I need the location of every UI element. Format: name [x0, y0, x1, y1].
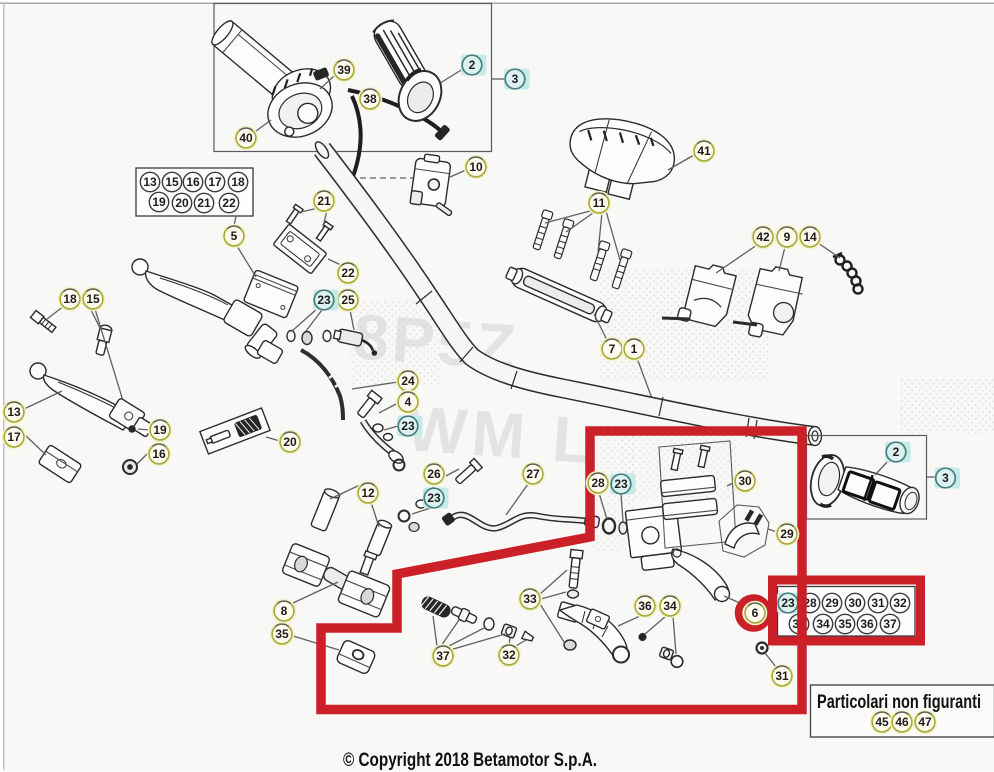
svg-text:17: 17	[7, 430, 21, 444]
svg-text:37: 37	[883, 617, 897, 631]
svg-text:2: 2	[469, 58, 476, 72]
svg-text:Particolari non figuranti: Particolari non figuranti	[817, 692, 981, 713]
svg-text:36: 36	[638, 599, 652, 613]
svg-text:42: 42	[756, 230, 770, 244]
svg-text:23: 23	[317, 293, 331, 307]
svg-text:© Copyright 2018 Betamotor S.p: © Copyright 2018 Betamotor S.p.A.	[343, 749, 597, 771]
svg-text:3: 3	[512, 72, 519, 86]
svg-text:24: 24	[401, 374, 415, 388]
svg-text:21: 21	[197, 196, 211, 210]
svg-text:12: 12	[361, 486, 375, 500]
svg-text:37: 37	[436, 649, 450, 663]
svg-text:31: 31	[775, 669, 789, 683]
svg-text:27: 27	[526, 467, 540, 481]
svg-text:10: 10	[469, 160, 483, 174]
svg-text:14: 14	[803, 230, 817, 244]
svg-text:23: 23	[781, 596, 795, 610]
svg-text:21: 21	[317, 194, 331, 208]
svg-text:41: 41	[697, 144, 711, 158]
svg-text:35: 35	[838, 617, 852, 631]
svg-text:20: 20	[175, 196, 189, 210]
svg-text:23: 23	[427, 491, 441, 505]
svg-text:30: 30	[738, 474, 752, 488]
svg-text:1: 1	[631, 342, 638, 356]
svg-text:16: 16	[186, 175, 200, 189]
svg-text:18: 18	[63, 292, 77, 306]
svg-text:17: 17	[208, 175, 222, 189]
svg-text:13: 13	[7, 405, 21, 419]
svg-text:16: 16	[152, 447, 166, 461]
svg-text:15: 15	[86, 292, 100, 306]
svg-text:39: 39	[337, 63, 351, 77]
svg-text:19: 19	[152, 195, 166, 209]
svg-text:22: 22	[341, 266, 355, 280]
svg-text:33: 33	[523, 592, 537, 606]
svg-text:23: 23	[614, 477, 628, 491]
svg-text:31: 31	[871, 596, 885, 610]
svg-text:23: 23	[401, 419, 415, 433]
svg-text:7: 7	[609, 342, 616, 356]
svg-text:29: 29	[825, 596, 839, 610]
svg-text:32: 32	[893, 596, 907, 610]
svg-text:29: 29	[780, 527, 794, 541]
svg-text:28: 28	[591, 476, 605, 490]
svg-text:15: 15	[165, 175, 179, 189]
svg-text:9: 9	[784, 230, 791, 244]
svg-text:5: 5	[231, 229, 238, 243]
svg-text:8: 8	[281, 604, 288, 618]
svg-text:20: 20	[283, 435, 297, 449]
svg-text:22: 22	[222, 196, 236, 210]
svg-text:38: 38	[363, 92, 377, 106]
svg-text:6: 6	[752, 606, 759, 620]
svg-text:36: 36	[860, 617, 874, 631]
svg-text:45: 45	[875, 715, 889, 729]
svg-text:2: 2	[893, 445, 900, 459]
svg-text:26: 26	[427, 467, 441, 481]
svg-text:11: 11	[593, 196, 606, 210]
svg-text:34: 34	[816, 617, 830, 631]
svg-text:3: 3	[942, 471, 949, 485]
svg-text:25: 25	[341, 293, 355, 307]
svg-text:30: 30	[848, 596, 862, 610]
svg-text:19: 19	[153, 423, 167, 437]
svg-text:35: 35	[275, 627, 289, 641]
svg-text:46: 46	[895, 715, 909, 729]
svg-text:32: 32	[502, 648, 516, 662]
svg-text:40: 40	[239, 131, 253, 145]
svg-text:18: 18	[231, 175, 245, 189]
svg-text:34: 34	[663, 599, 677, 613]
svg-text:13: 13	[143, 175, 157, 189]
svg-text:47: 47	[918, 715, 932, 729]
svg-text:4: 4	[405, 395, 412, 409]
